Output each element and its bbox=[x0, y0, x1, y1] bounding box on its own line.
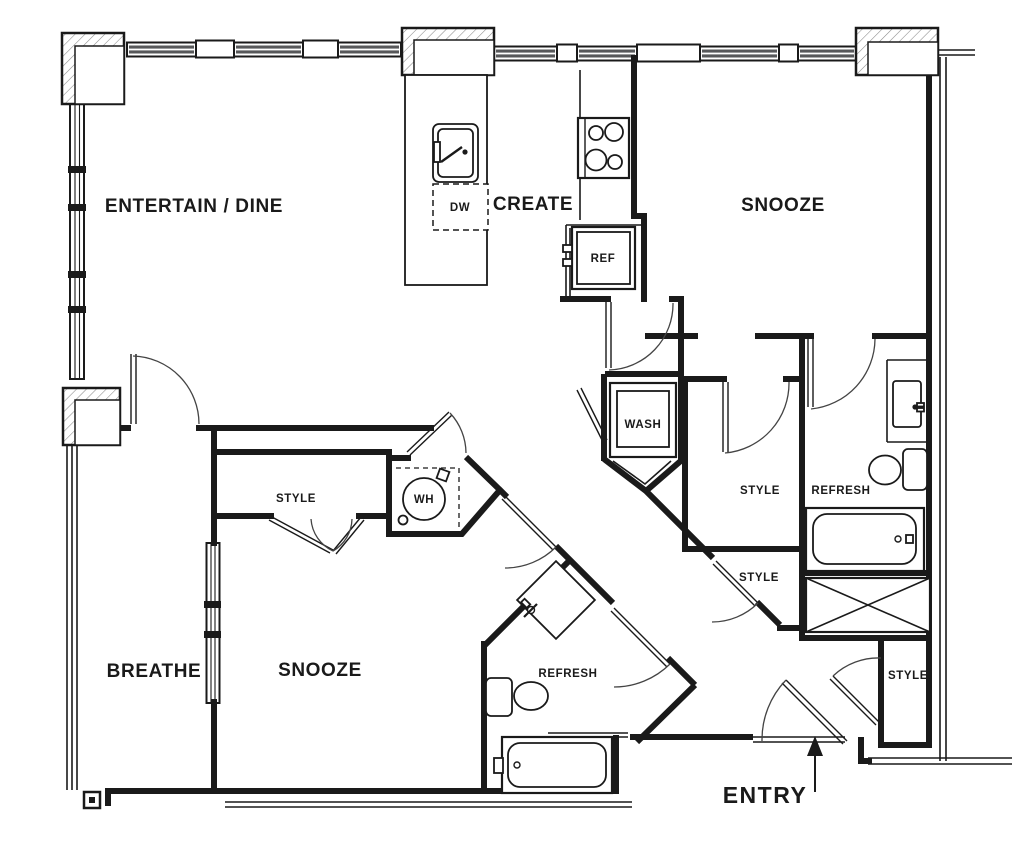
window-unit bbox=[798, 47, 856, 61]
dishwasher-label: DW bbox=[450, 202, 470, 214]
room-label-refresh-second: REFRESH bbox=[538, 668, 597, 680]
linen-xbox bbox=[806, 578, 930, 632]
room-label-snooze-second: SNOOZE bbox=[278, 660, 362, 681]
wall-segment bbox=[779, 45, 798, 62]
room-label-style-walkin: STYLE bbox=[740, 485, 780, 497]
room-label-style-entry: STYLE bbox=[888, 670, 928, 682]
kitchen-island: DW bbox=[405, 75, 488, 285]
room-label-style-reachin: STYLE bbox=[276, 493, 316, 505]
pillar-kitchen-top bbox=[402, 28, 494, 75]
stove bbox=[578, 118, 629, 178]
washer-label: WASH bbox=[625, 419, 662, 431]
background bbox=[0, 0, 1023, 854]
room-label-refresh-main: REFRESH bbox=[811, 485, 870, 497]
balcony-corner-post bbox=[84, 792, 100, 808]
refrigerator-label: REF bbox=[591, 253, 616, 265]
window-unit bbox=[494, 47, 557, 61]
room-label-breathe: BREATHE bbox=[107, 661, 202, 682]
bathroom-main-tub bbox=[806, 508, 924, 571]
kitchen-sink bbox=[433, 124, 478, 182]
room-label-create: CREATE bbox=[493, 194, 573, 215]
window-unit bbox=[700, 47, 779, 61]
water-heater-label: WH bbox=[414, 494, 434, 506]
wall-segment bbox=[557, 45, 577, 62]
washer: WASH bbox=[610, 383, 676, 457]
floor-plan: DW REF WASH WH bbox=[0, 0, 1023, 854]
room-label-entertain-dine: ENTERTAIN / DINE bbox=[105, 196, 283, 217]
window-wall-balcony bbox=[204, 543, 221, 703]
entry-label: ENTRY bbox=[723, 782, 808, 808]
pillar-top-left bbox=[62, 33, 124, 104]
window-wall-left bbox=[68, 103, 86, 379]
dishwasher: DW bbox=[433, 184, 488, 230]
room-label-style-linen: STYLE bbox=[739, 572, 779, 584]
window-unit bbox=[127, 43, 196, 57]
window-unit bbox=[577, 47, 637, 61]
pillar-mid-left bbox=[63, 388, 120, 445]
bathroom-second-tub bbox=[494, 737, 612, 793]
floor-plan-page: DW REF WASH WH bbox=[0, 0, 1023, 854]
wall-segment bbox=[196, 41, 234, 58]
pillar-top-right bbox=[856, 28, 938, 75]
window-unit bbox=[234, 43, 303, 57]
wall-segment bbox=[303, 41, 338, 58]
window-unit bbox=[338, 43, 401, 57]
wall-segment bbox=[637, 45, 700, 62]
refrigerator: REF bbox=[563, 227, 635, 289]
room-label-snooze-main: SNOOZE bbox=[741, 195, 825, 216]
